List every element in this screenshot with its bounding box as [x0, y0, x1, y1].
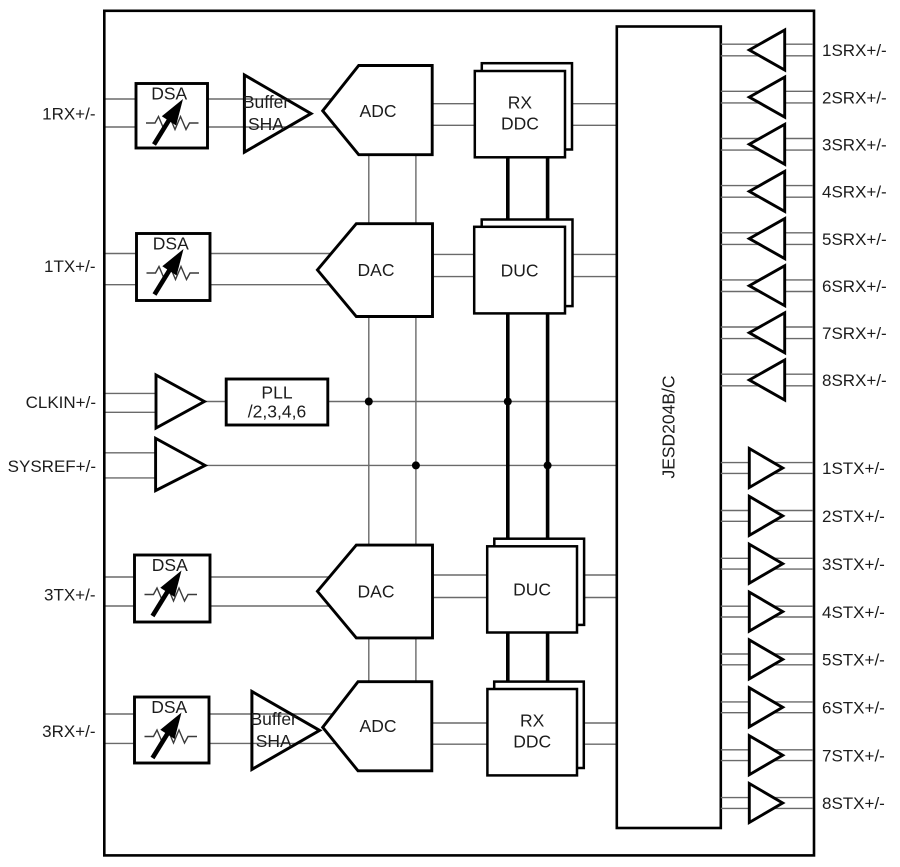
svg-text:DAC: DAC [358, 582, 395, 602]
svg-text:3RX+/-: 3RX+/- [42, 722, 95, 741]
svg-text:Buffer: Buffer [243, 92, 290, 112]
svg-text:SHA: SHA [248, 114, 284, 134]
svg-text:8STX+/-: 8STX+/- [822, 794, 885, 813]
svg-text:7STX+/-: 7STX+/- [822, 746, 885, 765]
svg-text:SYSREF+/-: SYSREF+/- [8, 457, 96, 476]
svg-text:4STX+/-: 4STX+/- [822, 603, 885, 622]
svg-text:2STX+/-: 2STX+/- [822, 507, 885, 526]
svg-text:5SRX+/-: 5SRX+/- [822, 230, 887, 249]
svg-text:Buffer: Buffer [251, 709, 298, 729]
svg-text:DUC: DUC [513, 580, 551, 600]
svg-text:1TX+/-: 1TX+/- [44, 257, 96, 276]
svg-text:3TX+/-: 3TX+/- [44, 586, 96, 605]
svg-text:DSA: DSA [152, 555, 188, 575]
svg-text:3SRX+/-: 3SRX+/- [822, 136, 887, 155]
svg-text:RX: RX [508, 92, 533, 112]
svg-text:8SRX+/-: 8SRX+/- [822, 371, 887, 390]
svg-text:/2,3,4,6: /2,3,4,6 [248, 402, 306, 422]
svg-text:2SRX+/-: 2SRX+/- [822, 88, 887, 107]
svg-text:DDC: DDC [513, 732, 551, 752]
svg-text:DUC: DUC [501, 260, 539, 280]
svg-text:DDC: DDC [501, 114, 539, 134]
svg-text:7SRX+/-: 7SRX+/- [822, 324, 887, 343]
svg-text:3STX+/-: 3STX+/- [822, 555, 885, 574]
svg-text:PLL: PLL [261, 382, 292, 402]
svg-text:CLKIN+/-: CLKIN+/- [26, 393, 96, 412]
svg-text:ADC: ADC [360, 101, 397, 121]
svg-text:6STX+/-: 6STX+/- [822, 699, 885, 718]
svg-text:DSA: DSA [153, 234, 189, 254]
svg-text:JESD204B/C: JESD204B/C [659, 375, 679, 478]
svg-text:6SRX+/-: 6SRX+/- [822, 277, 887, 296]
svg-text:1RX+/-: 1RX+/- [42, 105, 95, 124]
svg-text:DSA: DSA [151, 697, 187, 717]
svg-text:DAC: DAC [358, 260, 395, 280]
svg-text:RX: RX [520, 710, 545, 730]
svg-text:SHA: SHA [256, 731, 292, 751]
svg-text:ADC: ADC [360, 716, 397, 736]
svg-text:4SRX+/-: 4SRX+/- [822, 183, 887, 202]
svg-text:1SRX+/-: 1SRX+/- [822, 41, 887, 60]
svg-text:5STX+/-: 5STX+/- [822, 651, 885, 670]
svg-text:1STX+/-: 1STX+/- [822, 459, 885, 478]
